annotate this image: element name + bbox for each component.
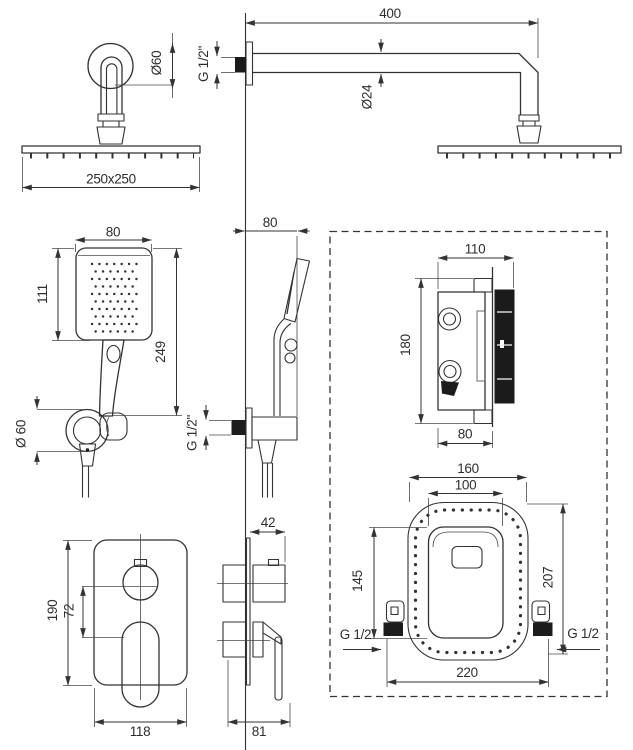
technical-drawing-page: Ø60 250x250 400 Ø24 G 1/2" — [0, 0, 633, 750]
view-hand-shower-side: 80 G 1/2" — [185, 215, 310, 498]
view-rain-shower-side: 400 Ø24 G 1/2" — [196, 6, 621, 156]
elbow-escutcheon — [66, 410, 108, 452]
dim-arm-length: 400 — [379, 6, 401, 21]
shower-installation-drawing: Ø60 250x250 400 Ø24 G 1/2" — [0, 0, 633, 750]
dim-knob-depth: 42 — [261, 515, 275, 530]
holder-block-side — [252, 417, 297, 440]
bracket-left — [387, 601, 405, 622]
elbow-flange-side — [246, 408, 252, 448]
valve-recess-block — [495, 290, 515, 404]
view-rain-shower-front: Ø60 250x250 — [22, 33, 200, 192]
hand-shower-holder — [100, 413, 127, 440]
dim-trim-total-depth: 81 — [252, 724, 266, 739]
view-trim-side: 42 81 — [217, 515, 290, 739]
dim-head-size: 250x250 — [86, 172, 136, 187]
trim-plate-side — [247, 538, 251, 685]
dim-control-spacing: 72 — [62, 604, 77, 618]
label-thread-right: G 1/2 — [567, 626, 599, 641]
cutout-outline — [408, 503, 528, 661]
lever-base-side — [253, 622, 263, 657]
dim-holder-offset: 80 — [263, 215, 277, 230]
dim-cover-width: 100 — [455, 478, 477, 493]
hose-nut — [80, 444, 96, 466]
thread-block-right — [533, 623, 553, 637]
elbow-thread-block — [232, 420, 246, 435]
dim-valve-recess-depth: 80 — [458, 427, 472, 442]
dim-hand-head-height: 111 — [35, 284, 50, 304]
view-hand-shower-front: 80 111 249 — [14, 225, 183, 498]
hose-cone-side — [258, 440, 276, 463]
shower-arm — [252, 54, 538, 116]
label-thread-left: G 1/2 — [340, 627, 372, 642]
view-trim-front: 190 72 118 — [45, 534, 187, 739]
arm-thread-block — [235, 57, 246, 73]
dim-arm-wall-thread: G 1/2" — [196, 45, 211, 82]
rain-head-side — [438, 146, 621, 153]
dim-cutout-width: 160 — [457, 461, 479, 476]
valve-tab-bottom — [474, 410, 492, 424]
valve-cover — [429, 527, 504, 638]
dim-cover-height: 145 — [350, 570, 365, 592]
dim-cutout-height: 207 — [541, 567, 556, 589]
ceiling-escutcheon — [88, 44, 133, 89]
hand-shower-button — [107, 346, 120, 363]
head-connector-nut — [97, 127, 125, 144]
valve-body-lower — [223, 622, 246, 657]
dim-plate-width: 118 — [130, 724, 151, 739]
rain-head-front — [22, 146, 200, 153]
cover-window — [452, 547, 482, 569]
thread-block-left — [384, 623, 404, 637]
bracket-right — [532, 601, 550, 622]
arm-connector-nut — [517, 126, 541, 143]
holder-knuckle — [285, 339, 297, 351]
valve-knob-top — [439, 308, 461, 330]
dim-hand-head-width: 80 — [106, 225, 120, 240]
hand-shower-handle — [100, 340, 125, 416]
valve-tab-top — [474, 279, 492, 293]
arm-wall-flange — [246, 42, 253, 85]
dim-hand-shower-length: 249 — [153, 341, 168, 363]
dim-valve-total-depth: 110 — [465, 242, 486, 257]
valve-knob-bottom — [439, 361, 461, 383]
dim-elbow-diameter: Ø 60 — [14, 420, 29, 448]
ceiling-pipe — [101, 57, 122, 114]
dim-arm-diameter: Ø24 — [360, 84, 375, 109]
dim-box-width: 220 — [456, 665, 478, 680]
dim-valve-height: 180 — [398, 334, 413, 356]
view-valve-box-front: 160 100 145 207 G 1/2 G 1/2 — [340, 461, 600, 687]
lever-arm-side — [275, 637, 282, 700]
dim-elbow-thread: G 1/2" — [185, 414, 200, 451]
dim-escutcheon-diameter: Ø60 — [149, 51, 164, 76]
dim-plate-height: 190 — [45, 600, 60, 622]
view-valve-box-side: 110 180 80 — [398, 242, 515, 449]
